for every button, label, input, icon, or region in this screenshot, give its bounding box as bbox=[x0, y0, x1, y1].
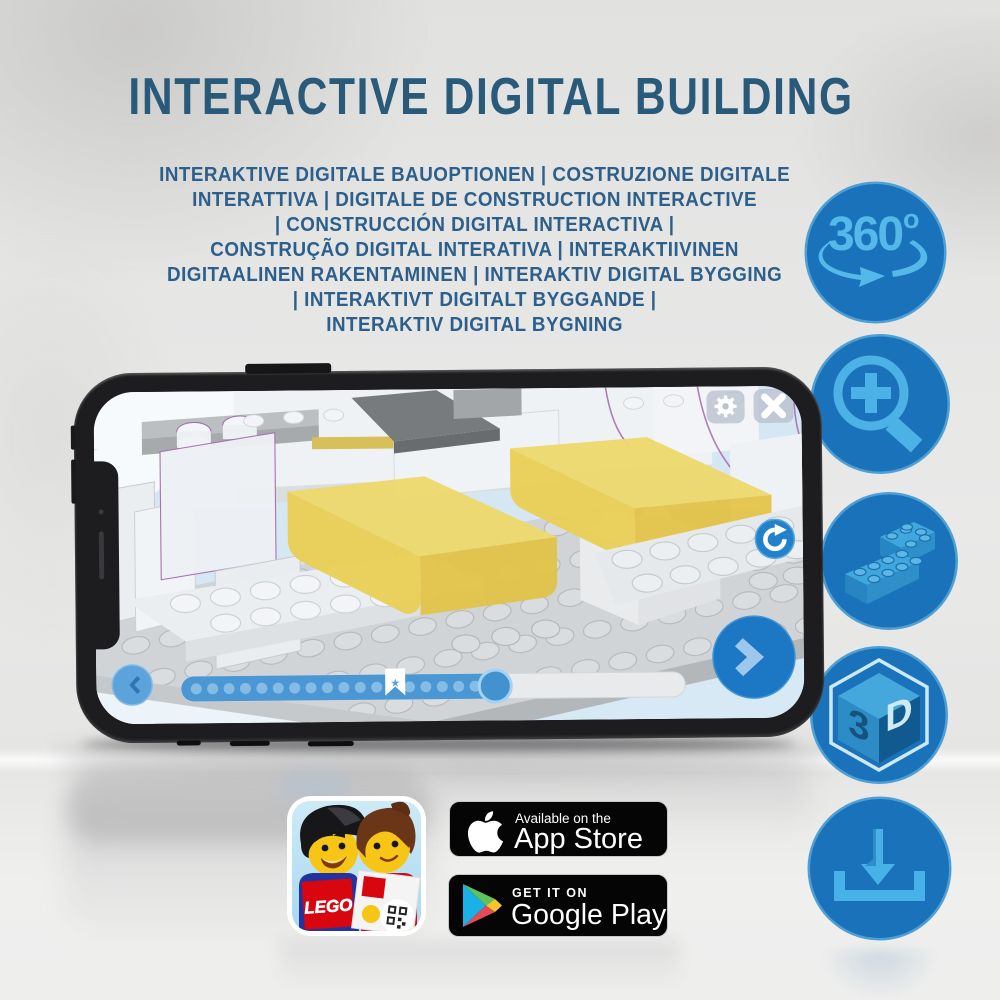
svg-text:GET IT ON: GET IT ON bbox=[512, 886, 588, 900]
svg-text:360: 360 bbox=[828, 208, 902, 261]
svg-text:3: 3 bbox=[848, 700, 869, 751]
svg-text:Google Play: Google Play bbox=[511, 899, 667, 931]
svg-text:App Store: App Store bbox=[514, 823, 643, 855]
svg-text:★: ★ bbox=[390, 677, 400, 689]
svg-text:o: o bbox=[903, 204, 920, 234]
svg-text:LEGO: LEGO bbox=[304, 895, 353, 917]
